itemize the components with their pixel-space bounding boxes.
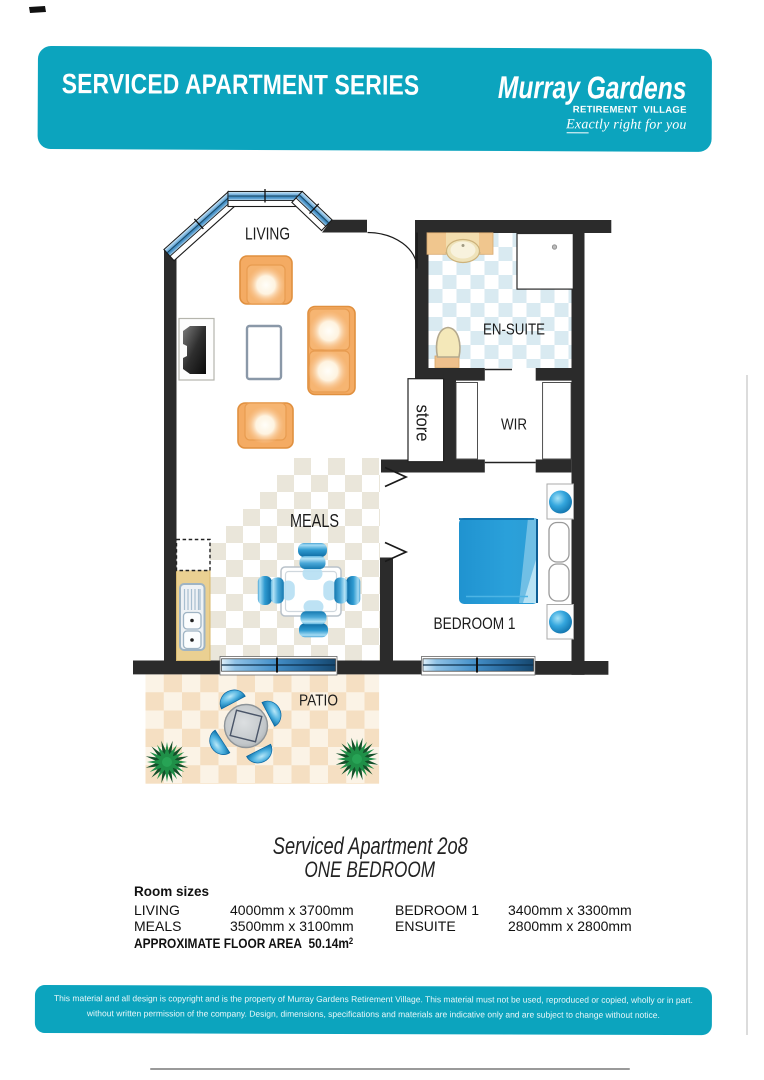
svg-text:MEALS: MEALS xyxy=(290,511,339,531)
svg-text:PATIO: PATIO xyxy=(299,693,338,710)
svg-text:EN-SUITE: EN-SUITE xyxy=(483,322,545,339)
svg-text:WIR: WIR xyxy=(501,417,527,434)
svg-text:LIVING: LIVING xyxy=(245,224,290,244)
svg-text:BEDROOM 1: BEDROOM 1 xyxy=(434,615,516,633)
svg-text:store: store xyxy=(413,405,433,442)
